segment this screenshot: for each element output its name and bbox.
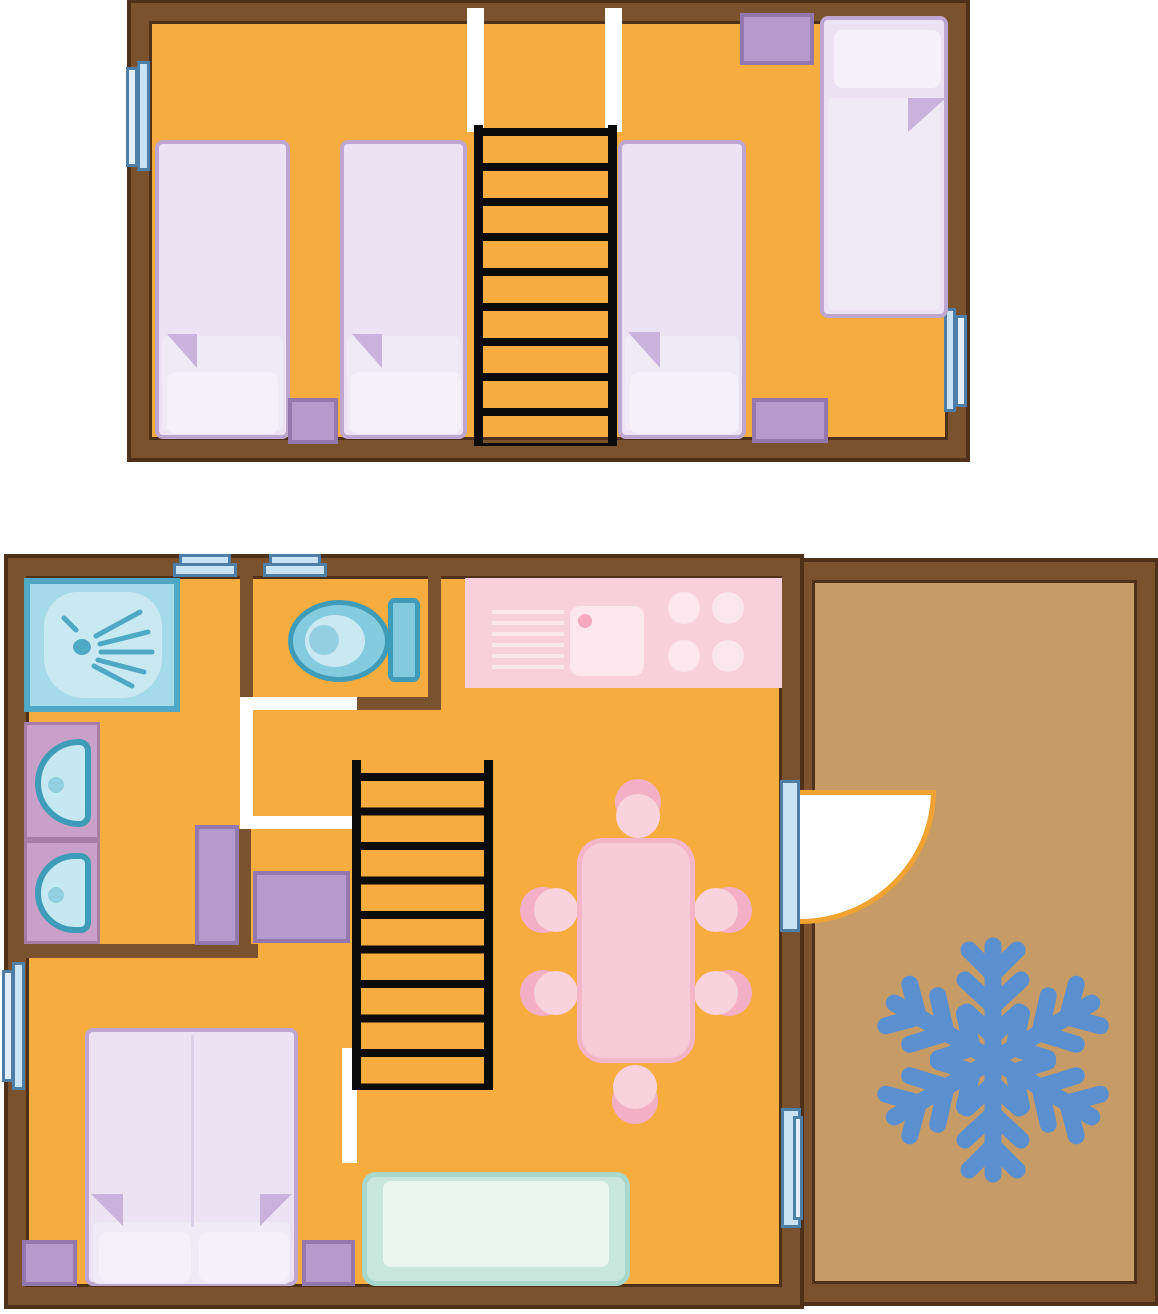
- kitchen-sink: [570, 606, 644, 676]
- stair-rungs: [474, 128, 617, 446]
- basin-drain: [48, 777, 64, 793]
- wc-wall-right: [428, 574, 441, 710]
- storage-cabinet: [253, 871, 350, 943]
- mattress-divider: [191, 1035, 194, 1227]
- hob-burner: [668, 592, 700, 624]
- draining-board: [492, 610, 564, 672]
- single-bed: [340, 140, 467, 439]
- vanity-unit: [24, 840, 100, 944]
- bed-blanket: [828, 98, 940, 310]
- window: [263, 563, 327, 577]
- toilet-flush: [309, 625, 339, 655]
- dining-chair-seat: [613, 1065, 657, 1109]
- washbasin: [35, 853, 91, 933]
- dining-chair-seat: [694, 971, 738, 1015]
- wc-wall-left: [240, 574, 253, 702]
- shower-pan: [44, 592, 162, 698]
- bedside-cabinet: [302, 1240, 355, 1286]
- ladder-staircase: [474, 125, 617, 446]
- hob-burner: [712, 592, 744, 624]
- window: [12, 962, 25, 1090]
- bedside-cabinet: [752, 398, 828, 443]
- ladder-staircase: [352, 760, 493, 1090]
- washbasin: [35, 739, 91, 827]
- single-bed: [618, 140, 746, 439]
- window: [955, 315, 967, 407]
- dining-chair-seat: [534, 888, 578, 932]
- wc-wall-bottom: [357, 697, 441, 710]
- bed-pillow: [834, 30, 941, 88]
- double-bed: [85, 1028, 298, 1286]
- sofa: [362, 1172, 630, 1286]
- ground-floor-plan: [8, 558, 800, 1305]
- door-opening: [240, 697, 253, 829]
- window: [137, 61, 150, 171]
- dining-chair-seat: [534, 971, 578, 1015]
- faucet-dot: [578, 614, 592, 628]
- bed-pillow: [630, 372, 738, 434]
- bed-pillow: [99, 1232, 191, 1282]
- snowflake-icon: [863, 930, 1123, 1190]
- toilet-tank: [388, 598, 420, 682]
- window: [173, 563, 237, 577]
- floor-plan-canvas: [0, 0, 1158, 1314]
- bed-pillow: [350, 372, 461, 434]
- bedside-cabinet: [288, 398, 338, 444]
- kitchen-counter: [465, 578, 782, 688]
- upper-floor-plan: [131, 3, 966, 458]
- bedside-cabinet: [22, 1240, 77, 1286]
- bed-pillow: [199, 1232, 289, 1282]
- hob-burner: [712, 640, 744, 672]
- dining-chair-seat: [616, 794, 660, 838]
- vanity-unit: [24, 722, 100, 840]
- dining-chair-seat: [694, 888, 738, 932]
- bed-pillow: [167, 372, 278, 434]
- bathroom-wall-right: [238, 829, 251, 946]
- single-bed: [155, 140, 290, 439]
- stairwell-opening-left: [467, 8, 484, 132]
- terrace-door: [780, 780, 800, 932]
- toilet-bowl: [288, 600, 390, 682]
- stair-rungs: [352, 773, 493, 1090]
- dining-table: [577, 838, 695, 1063]
- window: [793, 1116, 803, 1220]
- hob-burner: [668, 640, 700, 672]
- storage-cabinet: [195, 825, 239, 945]
- shower-tray: [24, 578, 180, 712]
- basin-drain: [48, 887, 64, 903]
- bedside-cabinet: [740, 13, 814, 65]
- sofa-cushion: [383, 1181, 609, 1267]
- stairwell-opening-right: [605, 8, 622, 132]
- shower-spray-icon: [44, 592, 162, 698]
- door-opening: [240, 697, 357, 710]
- bathroom-wall-bottom: [10, 944, 258, 958]
- terrace: [794, 562, 1155, 1302]
- single-bed: [820, 16, 948, 318]
- door-opening: [240, 816, 357, 829]
